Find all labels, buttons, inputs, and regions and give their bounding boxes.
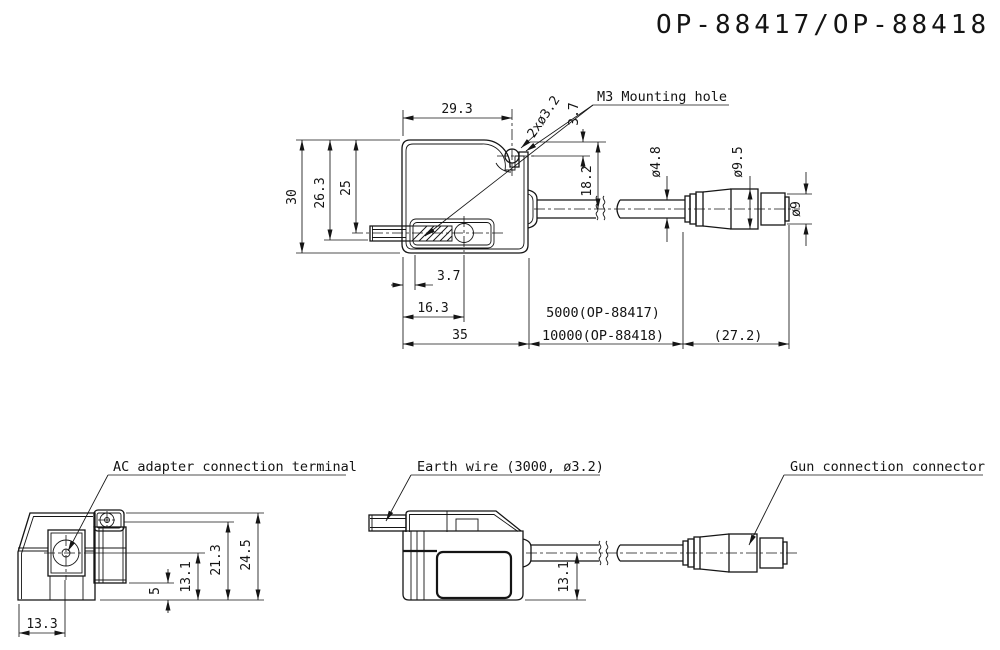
dim-tip-dia: ø9: [787, 172, 812, 246]
dim-label-16-3: 16.3: [417, 301, 448, 316]
dim-hole2-from-left: 16.3: [403, 255, 464, 322]
dim-earth-cable-height: 13.1: [525, 553, 586, 600]
dim-label-13-1-ac: 13.1: [179, 561, 194, 592]
dim-label-2x3-2: 2xø3.2: [525, 93, 564, 140]
dim-terminal-from-left: 13.3: [19, 580, 65, 637]
ac-adapter-view: AC adapter connection terminal 13.3 5 13…: [18, 459, 357, 637]
dim-label-5: 5: [148, 587, 163, 595]
title-block: OP-88417/OP-88418: [656, 10, 990, 40]
earth-terminal-tube: [370, 226, 452, 241]
dim-label-3-7-bottom: 3.7: [437, 269, 460, 284]
drawing-title: OP-88417/OP-88418: [656, 10, 990, 40]
dim-cable-length: 5000(OP-88417) 10000(OP-88418): [529, 232, 683, 349]
dim-cable-from-top: 18.2: [580, 142, 598, 209]
dim-label-30: 30: [285, 189, 300, 205]
dim-height-25: 25: [339, 140, 356, 233]
dim-label-9-5: ø9.5: [731, 146, 746, 177]
dim-cable-dia: ø4.8: [649, 146, 667, 242]
callout-earth-wire: Earth wire (3000, ø3.2): [386, 459, 604, 521]
dim-label-35: 35: [452, 328, 468, 343]
top-view: 29.3 2xø3.2 3.7 18.2 M3 Mounting hole: [285, 89, 812, 349]
dim-label-29-3: 29.3: [441, 102, 472, 117]
dim-total-height: 24.5: [126, 513, 264, 600]
dim-label-10000: 10000(OP-88418): [542, 328, 664, 344]
dim-label-9: ø9: [789, 201, 804, 217]
gun-connector-label: Gun connection connector: [790, 459, 985, 475]
callout-ac-terminal: AC adapter connection terminal: [68, 459, 357, 551]
dim-width-to-hole: 29.3: [403, 102, 512, 136]
ac-body-outline: [18, 510, 126, 600]
dim-label-26-3: 26.3: [313, 177, 328, 208]
earth-wire-view: Earth wire (3000, ø3.2) 13.1 Gun connect…: [369, 459, 985, 600]
dim-label-13-3: 13.3: [26, 617, 57, 632]
dim-connector-length: (27.2): [683, 225, 789, 349]
drawing-canvas: OP-88417/OP-88418: [0, 0, 1000, 650]
dim-label-21-3: 21.3: [209, 544, 224, 575]
dim-step-height: 5: [129, 569, 174, 613]
ac-terminal-label: AC adapter connection terminal: [113, 459, 357, 475]
dim-label-5000: 5000(OP-88417): [546, 305, 660, 321]
dim-label-4-8: ø4.8: [649, 146, 664, 177]
technical-drawing-page: OP-88417/OP-88418: [0, 0, 1000, 650]
dim-label-24-5: 24.5: [239, 539, 254, 570]
dim-label-13-1-earth: 13.1: [557, 561, 572, 592]
dim-label-25: 25: [339, 180, 354, 196]
dim-label-27-2: (27.2): [714, 328, 763, 344]
earth-wire-label: Earth wire (3000, ø3.2): [417, 459, 604, 475]
callout-gun-connector: Gun connection connector: [749, 459, 985, 545]
centerlines: [352, 109, 800, 252]
dim-connector-dia: ø9.5: [731, 146, 750, 229]
dim-label-18-2: 18.2: [580, 165, 595, 196]
earth-body-outline: [369, 511, 531, 600]
mounting-hole-label: M3 Mounting hole: [597, 89, 727, 105]
